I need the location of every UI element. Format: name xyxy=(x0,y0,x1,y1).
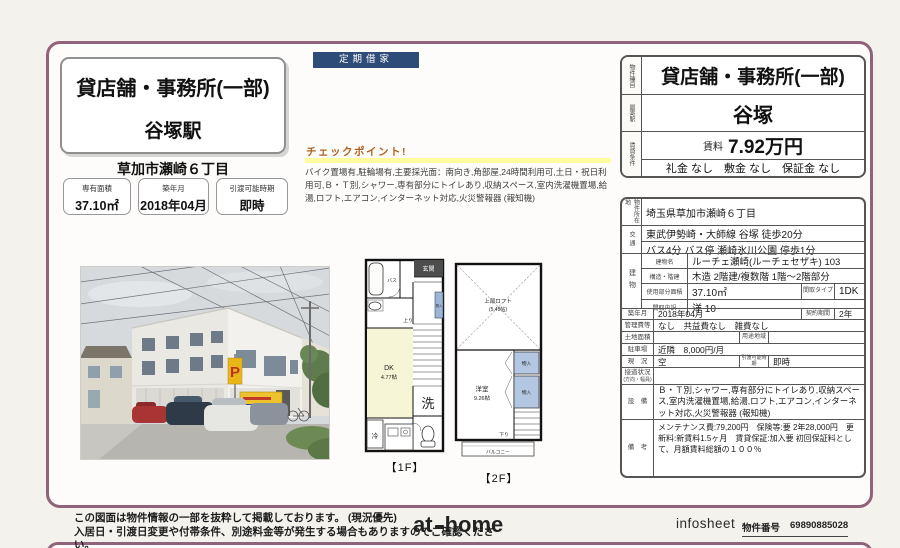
loft-label: 上部ロフト xyxy=(484,297,512,305)
logo-home: home xyxy=(445,512,504,538)
property-type-title: 貸店舗・事務所(一部) xyxy=(62,72,284,101)
row-parking: 駐車場 近隣 8,000円/月 xyxy=(622,343,864,355)
status-label: 現 況 xyxy=(622,356,654,367)
row-management: 管理費等 なし 共益費なし 雑費なし xyxy=(622,319,864,331)
built-value: 2018年04月 xyxy=(654,309,801,319)
zoning-value xyxy=(769,332,864,343)
notes-label: 備 考 xyxy=(622,420,654,476)
loft-size-label: (5.45帖) xyxy=(489,306,507,313)
stat-handover: 引渡可能時期 即時 xyxy=(216,178,288,215)
summary-type-value: 貸店舗・事務所(一部) xyxy=(642,57,864,94)
property-number-label: 物件番号 xyxy=(742,520,780,534)
summary-terms-label: 賃貸条件 xyxy=(622,132,642,176)
checkpoint-highlight-bar xyxy=(305,158,611,163)
title-box: 貸店舗・事務所(一部) 谷塚駅 xyxy=(60,57,286,154)
zoning-label: 用途地域 xyxy=(739,332,769,343)
location-label: 物件所在地 xyxy=(622,199,642,225)
summary-type-label: 物件種目 xyxy=(622,57,642,94)
area-label: 使用部分面積 xyxy=(642,284,688,299)
stat-area-value: 37.10㎡ xyxy=(64,195,130,214)
summary-station-value: 谷塚 xyxy=(642,95,864,131)
stat-area-label: 専有面積 xyxy=(64,183,130,194)
road-label: 接道状況 (方向・幅員) xyxy=(622,368,654,384)
stat-built-label: 築年月 xyxy=(139,183,208,194)
management-value: なし 共益費なし 雑費なし xyxy=(654,320,864,331)
station-title: 谷塚駅 xyxy=(62,116,284,143)
dk-room xyxy=(367,328,413,418)
checkpoint-heading: チェックポイント! xyxy=(306,144,407,159)
toilet-icon xyxy=(422,426,434,442)
row-land: 土地面積 用途地域 xyxy=(622,331,864,343)
fees-line: 礼金 なし 敷金 なし 保証金 なし xyxy=(642,159,864,176)
land-value xyxy=(654,332,739,343)
stat-handover-label: 引渡可能時期 xyxy=(217,183,287,194)
notes-value: メンテナンス費:79,200円 保険等:要 2年28,000円 更新料:新賃料1… xyxy=(654,420,864,476)
floorplan-1f-label: 【1F】 xyxy=(364,459,446,475)
status-value: 空 xyxy=(654,356,739,367)
closet-1-label: 物入 xyxy=(522,360,532,367)
closet-2-label: 物入 xyxy=(522,389,532,396)
building-name-label: 建物名 xyxy=(642,254,688,268)
summary-station-label: 最寄駅 xyxy=(622,95,642,131)
equipment-value: Ｂ・Ｔ別,シャワー,専有部分にトイレあり,収納スペース,室内洗濯機置場,給湯,ロ… xyxy=(654,385,864,419)
western-room-label: 洋室 xyxy=(476,384,490,393)
property-number-value: 69890885028 xyxy=(790,520,848,534)
location-value: 埼玉県草加市瀬崎６丁目 xyxy=(642,199,864,225)
contract-value: 2年 xyxy=(835,309,864,319)
row-built: 築年月 2018年04月 契約期間 2年 xyxy=(622,308,864,319)
floorplan-1f: 玄関 バス 物入 上り DK 4.77帖 洗 冷 xyxy=(364,258,446,458)
management-label: 管理費等 xyxy=(622,320,654,331)
athome-logo: at home xyxy=(413,512,503,538)
property-address: 草加市瀬崎６丁目 xyxy=(60,159,286,179)
stat-area: 専有面積 37.10㎡ xyxy=(63,178,131,215)
stairs-down-label: 下り xyxy=(499,432,509,438)
summary-station-row: 最寄駅 谷塚 xyxy=(622,94,864,131)
infosheet-label: infosheet xyxy=(676,516,735,531)
building-name-value: ルーチェ瀬崎(ルーチェセザキ) 103 xyxy=(688,254,864,268)
stat-built: 築年月 2018年04月 xyxy=(138,178,209,215)
row-status: 現 況 空 引渡可能時期 即時 xyxy=(622,355,864,367)
stat-built-value: 2018年04月 xyxy=(139,195,208,214)
row-location: 物件所在地 埼玉県草加市瀬崎６丁目 xyxy=(622,199,864,225)
structure-value: 木造 2階建/複数階 1階～2階部分 xyxy=(688,269,864,283)
built-label: 築年月 xyxy=(622,309,654,319)
contract-label: 契約期間 xyxy=(801,309,835,319)
property-details-table: 物件所在地 埼玉県草加市瀬崎６丁目 交通 東武伊勢崎・大師線 谷塚 徒歩20分 … xyxy=(620,197,866,478)
western-room-size: 9.26帖 xyxy=(474,394,491,402)
logo-at: at xyxy=(413,512,433,538)
floorplan-2f: 上部ロフト (5.45帖) 洋室 9.26帖 物入 物入 下り バルコニー xyxy=(454,262,544,462)
balcony-label: バルコニー xyxy=(486,450,510,456)
fridge-label: 冷 xyxy=(372,431,379,440)
summary-box: 物件種目 貸店舗・事務所(一部) 最寄駅 谷塚 賃貸条件 賃料 7.92万円 礼… xyxy=(620,55,866,178)
washer-label: 洗 xyxy=(421,396,434,411)
handover-label: 引渡可能時期 xyxy=(739,356,769,367)
summary-type-row: 物件種目 貸店舗・事務所(一部) xyxy=(622,57,864,94)
shoe-closet-label: 物入 xyxy=(436,303,443,308)
structure-label: 構造・階建 xyxy=(642,269,688,283)
layout-type-value: 1DK xyxy=(835,284,864,299)
row-building: 建物 建物名 ルーチェ瀬崎(ルーチェセザキ) 103 構造・階建 木造 2階建/… xyxy=(622,253,864,308)
land-label: 土地面積 xyxy=(622,332,654,343)
rent-label: 賃料 xyxy=(703,138,723,153)
handover-value: 即時 xyxy=(769,356,864,367)
rent-value: 7.92万円 xyxy=(728,132,803,159)
row-road: 接道状況 (方向・幅員) xyxy=(622,367,864,384)
row-equipment: 設 備 Ｂ・Ｔ別,シャワー,専有部分にトイレあり,収納スペース,室内洗濯機置場,… xyxy=(622,384,864,419)
row-notes: 備 考 メンテナンス費:79,200円 保険等:要 2年28,000円 更新料:… xyxy=(622,419,864,476)
road-value xyxy=(654,368,864,384)
bathtub-icon xyxy=(369,263,383,295)
row-access: 交通 東武伊勢崎・大師線 谷塚 徒歩20分 バス4分 バス停 瀬崎氷川公園 停歩… xyxy=(622,225,864,253)
access-label: 交通 xyxy=(622,226,642,253)
stairs-up-label: 上り xyxy=(403,317,413,324)
neighbor-house-left xyxy=(80,358,132,424)
washbasin-icon xyxy=(369,302,381,310)
parking-value: 近隣 8,000円/月 xyxy=(654,344,864,355)
equipment-label: 設 備 xyxy=(622,385,654,419)
checkpoint-body: バイク置場有,駐輪場有,主要採光面：南向き,角部屋,24時間利用可,土日・祝日利… xyxy=(305,166,614,204)
parking-sign-letter: P xyxy=(230,364,240,381)
parking-label: 駐車場 xyxy=(622,344,654,355)
area-value: 37.10㎡ xyxy=(688,284,801,299)
fixed-term-lease-badge: 定期借家 xyxy=(313,52,419,68)
access-line1: 東武伊勢崎・大師線 谷塚 徒歩20分 xyxy=(642,226,864,241)
building-photo: P xyxy=(80,266,330,460)
bath-label: バス xyxy=(387,278,397,284)
floorplan-2f-label: 【2F】 xyxy=(454,470,544,486)
building-label: 建物 xyxy=(622,254,642,308)
stat-handover-value: 即時 xyxy=(217,195,287,214)
summary-terms-row: 賃貸条件 賃料 7.92万円 礼金 なし 敷金 なし 保証金 なし xyxy=(622,131,864,176)
dk-size-label: 4.77帖 xyxy=(381,373,398,381)
infosheet-page: 貸店舗・事務所(一部) 谷塚駅 定期借家 草加市瀬崎６丁目 専有面積 37.10… xyxy=(0,0,900,548)
dk-label: DK xyxy=(384,365,394,372)
logo-hyphen-icon xyxy=(435,525,444,529)
entrance-label: 玄関 xyxy=(422,265,434,273)
property-number: 物件番号 69890885028 xyxy=(742,520,848,537)
layout-type-label: 間取タイプ xyxy=(801,284,835,299)
